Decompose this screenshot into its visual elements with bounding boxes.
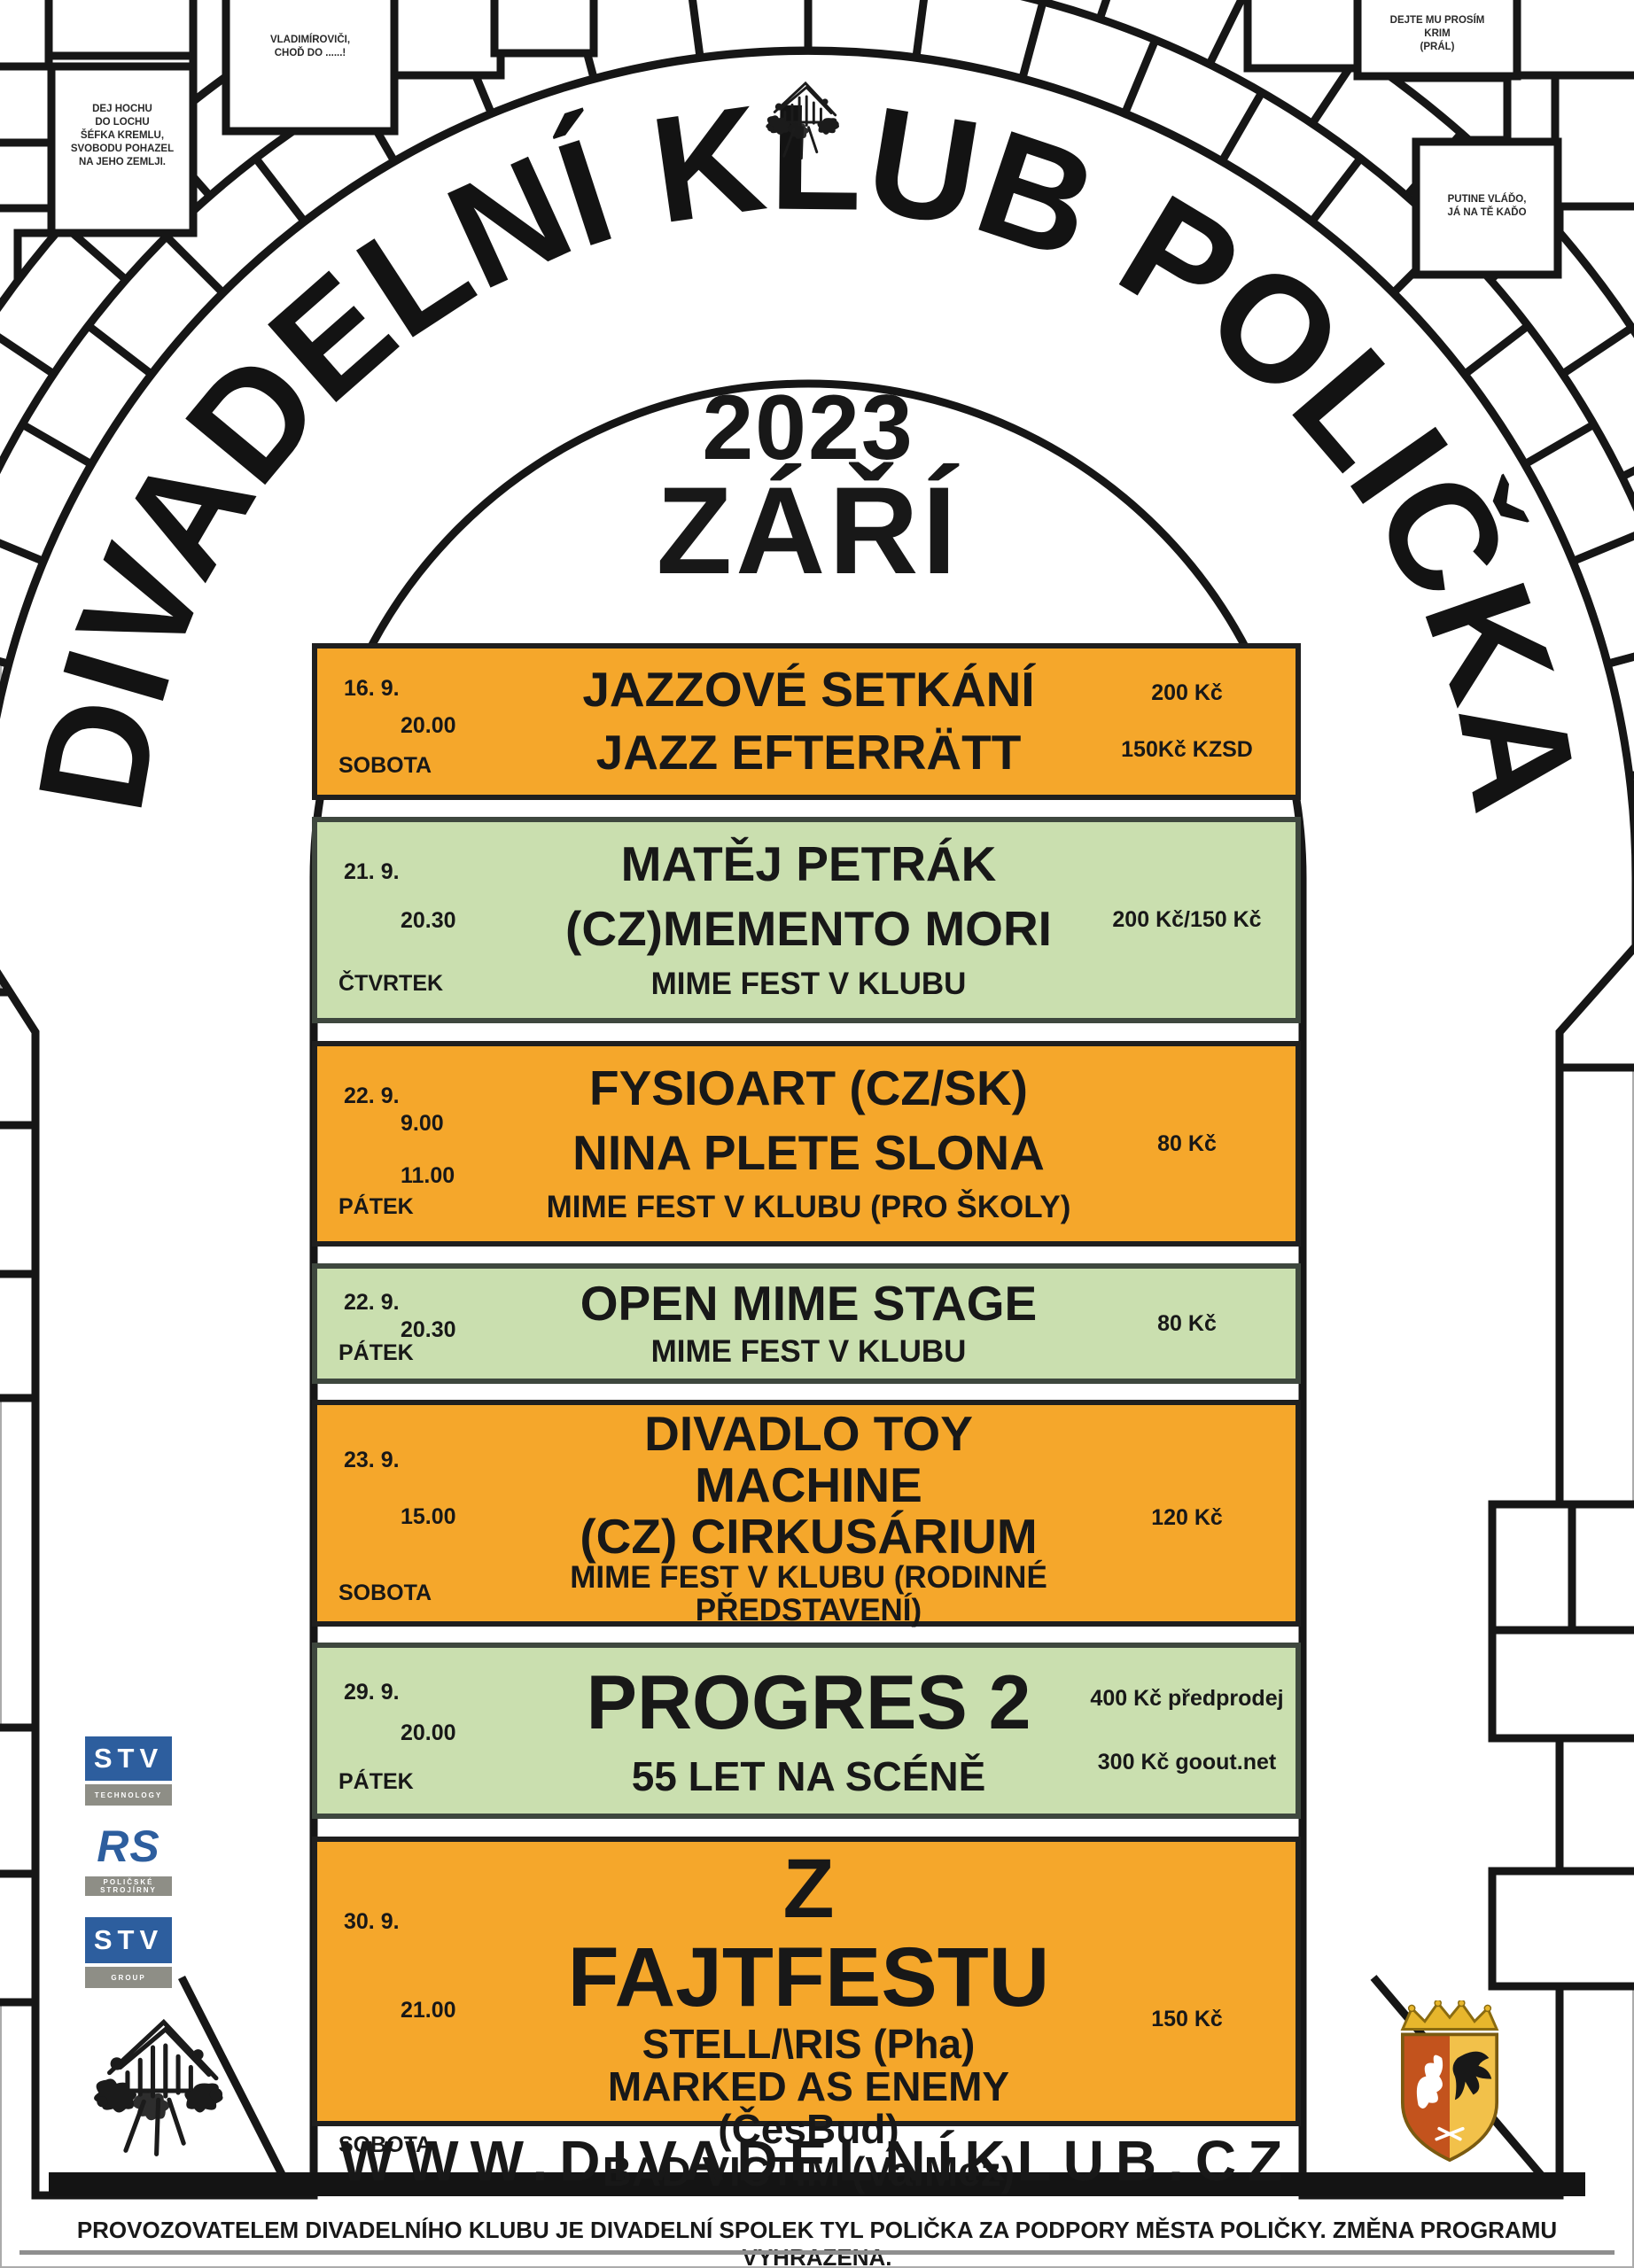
price-line: 120 Kč xyxy=(1151,1505,1223,1531)
price-line: 150Kč KZSD xyxy=(1121,737,1253,763)
event-title-line: MATĚJ PETRÁK xyxy=(621,839,997,890)
event-time: 9.00 xyxy=(401,1111,444,1137)
event-title-line: MIME FEST V KLUBU xyxy=(651,968,967,1001)
event-price: 200 Kč/150 Kč xyxy=(1078,822,1296,1018)
event-meta: 22. 9. 20.30 PÁTEK xyxy=(317,1269,539,1379)
event-price: 80 Kč xyxy=(1078,1269,1296,1379)
graffiti-top-right: DEJTE MU PROSÍM KRIM (PRÁL) xyxy=(1360,14,1514,54)
graffiti-top: VLADIMÍROVIČI, CHOĎ DO ......! xyxy=(229,34,392,60)
stv-technology-logo: STV xyxy=(85,1736,172,1781)
event-title-line: JAZZ EFTERRÄTT xyxy=(596,727,1022,779)
event-time: 21.00 xyxy=(401,1998,456,2023)
event-title-line: (CZ) CIRKUSÁRIUM xyxy=(580,1511,1037,1563)
graffiti-line: CHOĎ DO ......! xyxy=(229,47,392,60)
graffiti-line: SVOBODU POHAZEL xyxy=(53,143,191,156)
event-card-jazzove-setkani: 16. 9. 20.00 SOBOTA JAZZOVÉ SETKÁNÍ JAZZ… xyxy=(312,643,1301,800)
graffiti-line: DEJ HOCHU xyxy=(53,103,191,116)
event-meta: 21. 9. 20.30 ČTVRTEK xyxy=(317,822,539,1018)
event-title-line: STELL/\RIS (Pha) xyxy=(642,2023,976,2065)
graffiti-line: NA JEHO ZEMLJI. xyxy=(53,156,191,169)
event-time-2: 11.00 xyxy=(401,1163,455,1189)
event-date: 23. 9. xyxy=(344,1448,400,1473)
event-date: 22. 9. xyxy=(344,1084,400,1109)
event-title-line: Z FAJTFESTU xyxy=(539,1845,1078,2023)
event-title-line: NINA PLETE SLONA xyxy=(572,1128,1045,1179)
event-price: 80 Kč xyxy=(1078,1046,1296,1241)
price-line: 200 Kč xyxy=(1151,680,1223,706)
event-title-line: MIME FEST V KLUBU (PRO ŠKOLY) xyxy=(547,1192,1071,1224)
event-card-fysioart: 22. 9. 9.00 11.00 PÁTEK FYSIOART (CZ/SK)… xyxy=(312,1041,1301,1247)
event-price: 120 Kč xyxy=(1078,1405,1296,1631)
event-day: PÁTEK xyxy=(338,1769,414,1795)
graffiti-line: VLADIMÍROVIČI, xyxy=(229,34,392,47)
event-card-progres-2: 29. 9. 20.00 PÁTEK PROGRES 2 55 LET NA S… xyxy=(312,1643,1301,1819)
graffiti-line: JÁ NA TĚ KAĎO xyxy=(1418,206,1556,220)
event-title-line: DIVADLO TOY MACHINE xyxy=(539,1409,1078,1511)
event-date: 16. 9. xyxy=(344,676,400,702)
event-card-open-mime-stage: 22. 9. 20.30 PÁTEK OPEN MIME STAGE MIME … xyxy=(312,1263,1301,1384)
event-title-line: 55 LET NA SCÉNĚ xyxy=(632,1755,986,1798)
event-title-line: MIME FEST V KLUBU (RODINNÉ PŘEDSTAVENÍ) xyxy=(539,1562,1078,1627)
event-title-line: JAZZOVÉ SETKÁNÍ xyxy=(582,664,1034,716)
event-titles: OPEN MIME STAGE MIME FEST V KLUBU xyxy=(539,1269,1078,1379)
rs-logo-label: POLIČSKÉ STROJÍRNY xyxy=(85,1876,172,1896)
event-time: 20.00 xyxy=(401,713,456,739)
bottom-rule xyxy=(19,2250,1615,2255)
stv-group-logo: STV xyxy=(85,1917,172,1963)
price-line: 400 Kč předprodej xyxy=(1090,1686,1283,1712)
graffiti-line: KRIM xyxy=(1360,27,1514,41)
event-card-matej-petrak: 21. 9. 20.30 ČTVRTEK MATĚJ PETRÁK (CZ)ME… xyxy=(312,817,1301,1023)
event-meta: 29. 9. 20.00 PÁTEK xyxy=(317,1648,539,1814)
event-title-line: (CZ)MEMENTO MORI xyxy=(565,904,1052,955)
event-meta: 16. 9. 20.00 SOBOTA xyxy=(317,649,539,795)
event-date: 21. 9. xyxy=(344,859,400,885)
event-titles: PROGRES 2 55 LET NA SCÉNĚ xyxy=(539,1648,1078,1814)
event-titles: DIVADLO TOY MACHINE (CZ) CIRKUSÁRIUM MIM… xyxy=(539,1405,1078,1631)
event-day: PÁTEK xyxy=(338,1340,414,1366)
event-date: 30. 9. xyxy=(344,1909,400,1935)
event-day: SOBOTA xyxy=(338,753,432,779)
stv-technology-label: TECHNOLOGY xyxy=(85,1784,172,1806)
event-meta: 23. 9. 15.00 SOBOTA xyxy=(317,1405,539,1631)
graffiti-line: DO LOCHU xyxy=(53,116,191,129)
event-poster: DIVADELNÍ KLUB POLIČKA D xyxy=(0,0,1634,2268)
footer-note: PROVOZOVATELEM DIVADELNÍHO KLUBU JE DIVA… xyxy=(0,2217,1634,2268)
event-time: 20.00 xyxy=(401,1720,456,1746)
event-card-toy-machine: 23. 9. 15.00 SOBOTA DIVADLO TOY MACHINE … xyxy=(312,1400,1301,1627)
price-line: 150 Kč xyxy=(1151,2007,1223,2032)
graffiti-line: PUTINE VLÁĎO, xyxy=(1418,193,1556,206)
event-titles: MATĚJ PETRÁK (CZ)MEMENTO MORI MIME FEST … xyxy=(539,822,1078,1018)
event-title-line: MIME FEST V KLUBU xyxy=(651,1336,967,1369)
event-price: 400 Kč předprodej 300 Kč goout.net xyxy=(1078,1648,1296,1814)
price-line: 300 Kč goout.net xyxy=(1098,1750,1276,1775)
event-title-line: OPEN MIME STAGE xyxy=(580,1278,1037,1330)
event-date: 22. 9. xyxy=(344,1290,400,1316)
graffiti-line: DEJTE MU PROSÍM xyxy=(1360,14,1514,27)
event-day: PÁTEK xyxy=(338,1194,414,1220)
price-line: 200 Kč/150 Kč xyxy=(1112,907,1261,933)
graffiti-line: ŠÉFKA KREMLU, xyxy=(53,129,191,143)
event-titles: FYSIOART (CZ/SK) NINA PLETE SLONA MIME F… xyxy=(539,1046,1078,1241)
price-line: 80 Kč xyxy=(1157,1311,1217,1337)
event-time: 15.00 xyxy=(401,1504,456,1530)
event-day: SOBOTA xyxy=(338,1581,432,1606)
event-titles: JAZZOVÉ SETKÁNÍ JAZZ EFTERRÄTT xyxy=(539,649,1078,795)
event-title-line: PROGRES 2 xyxy=(587,1663,1031,1743)
rs-logo: RS xyxy=(85,1821,172,1873)
event-day: ČTVRTEK xyxy=(338,971,443,997)
website-url: WWW.DIVADELNÍKLUB.CZ xyxy=(133,2128,1501,2194)
event-price: 200 Kč 150Kč KZSD xyxy=(1078,649,1296,795)
event-meta: 22. 9. 9.00 11.00 PÁTEK xyxy=(317,1046,539,1241)
event-card-z-fajtfestu: 30. 9. 21.00 SOBOTA Z FAJTFESTU STELL/\R… xyxy=(312,1837,1301,2126)
event-date: 29. 9. xyxy=(344,1680,400,1705)
graffiti-right: PUTINE VLÁĎO, JÁ NA TĚ KAĎO xyxy=(1418,193,1556,220)
poster-month: ZÁŘÍ xyxy=(276,459,1340,602)
event-time: 20.30 xyxy=(401,1317,456,1343)
stv-group-label: GROUP xyxy=(85,1967,172,1988)
event-title-line: FYSIOART (CZ/SK) xyxy=(589,1063,1028,1115)
price-line: 80 Kč xyxy=(1157,1131,1217,1157)
graffiti-line: (PRÁL) xyxy=(1360,41,1514,54)
graffiti-left: DEJ HOCHU DO LOCHU ŠÉFKA KREMLU, SVOBODU… xyxy=(53,103,191,169)
event-time: 20.30 xyxy=(401,908,456,934)
